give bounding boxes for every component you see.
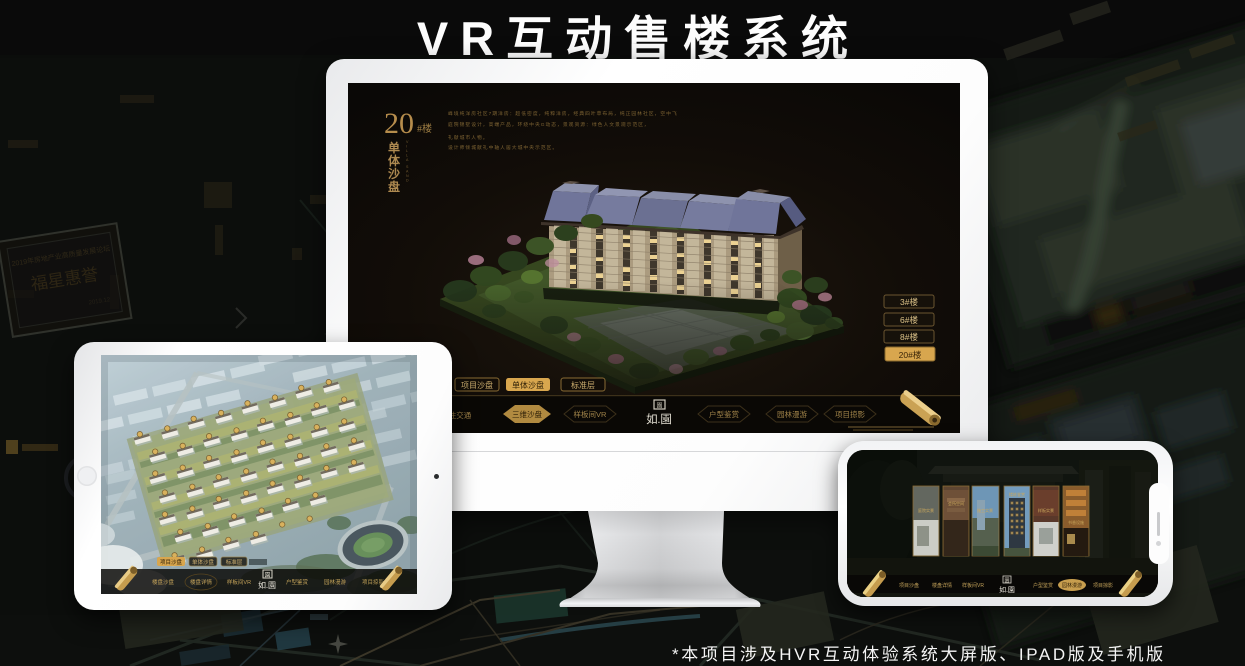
svg-text:单体沙盘: 单体沙盘 (192, 558, 215, 566)
svg-text:单体沙盘: 单体沙盘 (388, 140, 401, 194)
svg-text:庭院实景: 庭院实景 (918, 507, 934, 513)
svg-text:三维沙盘: 三维沙盘 (512, 409, 542, 419)
svg-text:会所空间: 会所空间 (948, 500, 964, 506)
svg-text:峰境纯洋房社区7期洋房：超低密度，纯粹洋房，经典四叶草布局，: 峰境纯洋房社区7期洋房：超低密度，纯粹洋房，经典四叶草布局，纯正园林社区，空中飞 (448, 110, 678, 117)
svg-text:项目掠影: 项目掠影 (835, 409, 865, 419)
svg-text:施工实景: 施工实景 (977, 507, 993, 513)
svg-text:园林漫游: 园林漫游 (324, 578, 347, 586)
svg-text:住交通: 住交通 (449, 410, 472, 420)
svg-text:户型鉴赏: 户型鉴赏 (709, 409, 739, 419)
svg-text:3#楼: 3#楼 (900, 297, 918, 307)
svg-text:户型鉴赏: 户型鉴赏 (286, 578, 309, 586)
svg-text:楼盘详情: 楼盘详情 (932, 582, 952, 589)
svg-text:标准层: 标准层 (571, 380, 595, 390)
svg-text:園: 園 (656, 403, 662, 410)
svg-text:书香设施: 书香设施 (1068, 519, 1084, 525)
svg-text:庭院锦墅设计，高端产品，环绕中央G动态，景观资源：绿色人文景: 庭院锦墅设计，高端产品，环绕中央G动态，景观资源：绿色人文景观示范区， (448, 121, 650, 128)
svg-text:如.園: 如.園 (258, 580, 276, 590)
svg-text:#楼: #楼 (417, 122, 432, 135)
svg-text:样板间VR: 样板间VR (227, 578, 251, 586)
svg-text:楼盘沙盘: 楼盘沙盘 (152, 578, 175, 586)
svg-text:样板间VR: 样板间VR (574, 409, 608, 419)
svg-text:6#楼: 6#楼 (900, 315, 918, 325)
svg-text:園: 園 (1004, 578, 1009, 584)
svg-text:样板实景: 样板实景 (1038, 507, 1054, 513)
svg-text:園: 園 (264, 572, 270, 579)
svg-text:样板间VR: 样板间VR (962, 582, 984, 589)
svg-text:项目沙盘: 项目沙盘 (899, 582, 919, 589)
svg-text:楼盘详情: 楼盘详情 (190, 578, 213, 586)
svg-text:项目掠影: 项目掠影 (1093, 582, 1113, 589)
svg-text:设计师倾城献礼中轴人居大城中央示范区。: 设计师倾城献礼中轴人居大城中央示范区。 (448, 144, 558, 151)
svg-text:20#楼: 20#楼 (899, 350, 922, 360)
svg-text:项目沙盘: 项目沙盘 (160, 558, 183, 566)
svg-text:户型鉴赏: 户型鉴赏 (1033, 582, 1053, 589)
svg-text:园林漫游: 园林漫游 (777, 409, 807, 419)
svg-text:如.園: 如.園 (646, 412, 672, 426)
svg-text:如.園: 如.園 (999, 585, 1015, 594)
svg-text:项目沙盘: 项目沙盘 (461, 380, 493, 390)
svg-text:8#楼: 8#楼 (900, 332, 918, 342)
svg-text:标准层: 标准层 (226, 558, 243, 566)
svg-text:园林漫游: 园林漫游 (1062, 582, 1082, 589)
svg-text:礼献城市人物。: 礼献城市人物。 (448, 134, 489, 141)
svg-text:楼栋鉴赏: 楼栋鉴赏 (1009, 491, 1025, 497)
svg-text:单体沙盘: 单体沙盘 (512, 380, 544, 390)
svg-text:20: 20 (384, 107, 414, 140)
